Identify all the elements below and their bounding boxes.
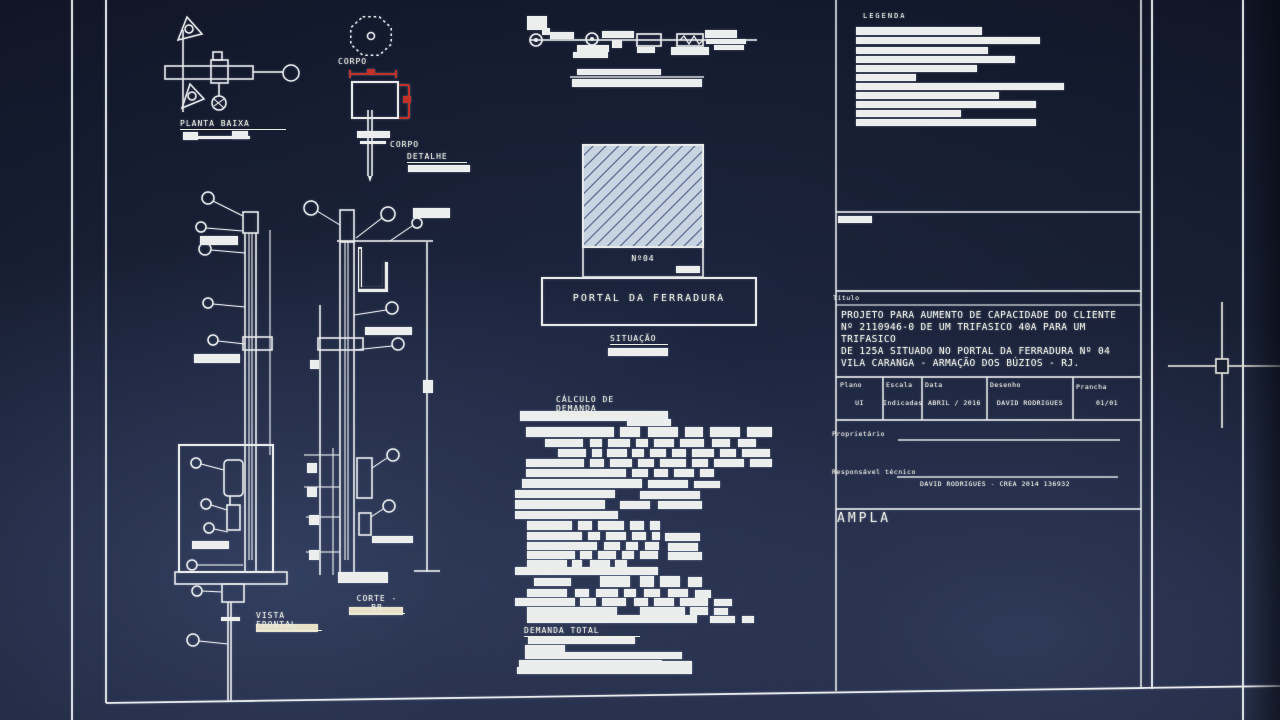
- red-dimension-lines: [350, 69, 411, 118]
- field-data-value: ABRIL / 2016: [922, 399, 987, 407]
- company-name: AMPLA: [837, 511, 891, 526]
- field-desenho-label: Desenho: [990, 381, 1021, 389]
- field-plano-value: UI: [836, 399, 883, 407]
- cad-drawing-canvas[interactable]: PLANTA BAIXA CORPO CORPO DETALHE SITUAÇÃ…: [0, 0, 1280, 720]
- field-plano-label: Plano: [840, 381, 862, 389]
- planta-baixa-label: PLANTA BAIXA: [180, 119, 286, 130]
- corte-bb-label: CORTE - BB: [349, 594, 405, 614]
- corpo-octagon-drawing: [351, 17, 391, 55]
- planta-baixa-drawing: [165, 17, 299, 112]
- field-prancha-label: Prancha: [1076, 383, 1107, 391]
- responsavel-value: DAVID RODRIGUES - CREA 2014 136932: [920, 480, 1070, 488]
- detalhe-label: DETALHE: [407, 152, 467, 163]
- field-desenho-value: DAVID RODRIGUES: [987, 399, 1073, 407]
- situacao-label: SITUAÇÃO: [610, 334, 668, 345]
- vista-frontal-label: VISTA FRONTAL: [256, 611, 322, 631]
- poste-numero-label: Nº04: [583, 254, 703, 263]
- field-prancha-value: 01/01: [1073, 399, 1141, 407]
- legenda-label: LEGENDA: [863, 12, 907, 20]
- meter-body: [224, 460, 243, 496]
- field-escala-label: Escala: [886, 381, 912, 389]
- detalhe-drawing: [350, 69, 411, 182]
- meter-enclosure: [179, 445, 273, 572]
- corte-bb-drawing: [304, 201, 440, 583]
- field-escala-value: Indicadas: [883, 399, 922, 407]
- screen-edge-shade: [1244, 0, 1280, 720]
- titulo-label: Título: [833, 294, 859, 302]
- detalhe-crossbar: [357, 131, 390, 138]
- proprietario-label: Proprietário: [832, 430, 885, 438]
- corpo-detail-label: CORPO: [390, 140, 419, 149]
- demanda-total-label: DEMANDA TOTAL: [524, 626, 640, 637]
- hatched-building: [583, 145, 703, 247]
- responsavel-label: Responsável técnico: [832, 468, 916, 476]
- field-data-label: Data: [925, 381, 943, 389]
- calculo-demanda-label: CÁLCULO DE DEMANDA: [556, 395, 656, 415]
- unifilar-diagram: [527, 16, 757, 77]
- corpo-octagon-label: CORPO: [338, 57, 367, 66]
- portal-ferradura-label: PORTAL DA FERRADURA: [542, 293, 756, 304]
- titulo-text: PROJETO PARA AUMENTO DE CAPACIDADE DO CL…: [841, 310, 1139, 370]
